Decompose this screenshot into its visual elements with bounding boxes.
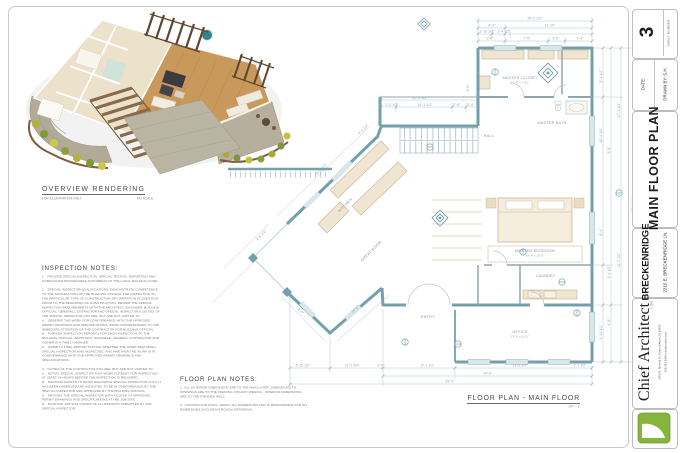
dimension-label: 29'-0" [445,380,455,384]
dimension-label: 11'-2 3/4" [345,364,361,368]
floor-plan-notes-body: 1. ALL EXTERIOR DIMENSIONS ARE TO THE MA… [180,386,308,412]
dimension-label: 2'-6" [486,37,494,41]
dimension-label: 10'-2 1/2" [599,127,603,143]
drawn-by-label: DRAWN BY: S.H. [663,67,668,100]
room-label: OFFICE [512,330,528,334]
dimension-label: 8'-4" [599,228,603,236]
plan-caption-title: FLOOR PLAN - MAIN FLOOR [467,395,580,404]
project-address: 2315 E. BRECKENRIDGE LN. [663,231,668,292]
sheet-title: MAIN FLOOR PLAN [647,106,661,230]
dimension-label: 17'-4 1/2" [617,102,621,118]
room-label: LAUNDRY [536,274,556,278]
floor-plan-notes-title: FLOOR PLAN NOTES: [180,376,308,383]
overview-subtitle-left: FOR ILLUSTRATION ONLY [42,197,82,201]
overview-caption: OVERVIEW RENDERING FOR ILLUSTRATION ONLY… [42,178,202,204]
titleblock-date-box [632,59,678,111]
titleblock-project-box [632,228,678,298]
brand-name: Chief Architect [636,303,654,401]
dimension-label: 24'-0" [483,372,493,376]
titleblock-divider [663,10,664,56]
room-label: HALL [484,134,494,138]
inspection-notes-title: INSPECTION NOTES: [42,265,162,272]
dimension-label: 1'-4 1/2" [497,30,511,34]
dimension-label: 8'-2" [488,24,496,28]
dimension-label: 9'-0" [466,84,470,92]
dimension-label: 2'-1 1/2" [573,364,587,368]
dimension-label: 9'-8" [607,146,611,154]
north-arrow-icon [418,18,430,30]
room-label: MASTER CLOSET [502,76,537,80]
sheet-number: 3 [637,27,659,38]
dimension-label: 4'-2 1/2" [357,123,370,136]
dimension-label: 2'-6 1/2" [385,103,399,107]
dimension-label: 2'-6" [377,364,385,368]
dimension-label: 4'-0" [607,318,611,326]
dimension-label: 6'-1 1/2" [421,364,435,368]
sheet-number-label: SHEET NUMBER [668,20,671,47]
dimension-label: 5'-11 1/2" [296,364,312,368]
dimension-label: 2'-6 1/2" [255,229,268,242]
overview-title: OVERVIEW RENDERING [42,186,145,195]
room-label: GREAT ROOM [360,240,383,263]
dimension-label: 34'-2 1/2" [527,17,543,21]
brand-address-line1: 6500 N. Mineral Dr. Coeur d'Alene, ID 83… [659,324,662,379]
project-name: BRECKENRIDGE [641,223,652,300]
dimension-label: 3'-1 1/2" [599,69,603,83]
room-label: ENTRY [421,315,435,319]
inspection-notes: INSPECTION NOTES: 1. PROVIDE SPECIAL INS… [42,265,162,453]
room-size-label: 16'-4" x 15'-2" [526,254,544,258]
brand-logo-icon [637,412,671,444]
titleblock-divider [654,60,655,108]
room-size-label: 13'-0" x 11'-2" [511,335,529,339]
dimension-label: 14'-1 1/2" [417,103,433,107]
dimension-label: 11'-7 1/2" [617,252,621,268]
dimension-label: 4'-11 1/2" [599,324,603,340]
stairs [400,128,478,153]
date-label: DATE: [641,78,646,90]
dimension-label: 2'-6" [453,103,461,107]
drawing-sheet: 34'-2 1/2"8'-2"11'-10"1'-10 1/2"1'-4 1/2… [0,0,680,453]
brand-address-line2: 208.292.3400 chiefarchitect.com [665,332,668,372]
plan-scale: 1/4" = 1' [518,405,581,409]
deck-edge [230,175,330,298]
overview-subtitle-right: NO SCALE [137,197,153,201]
dimension-label: 3'-6" [552,37,560,41]
dimension-label: 7'-0" [523,37,531,41]
dimension-label: 7'-4" [576,37,584,41]
dimension-label: 20'-1 1/4" [412,96,428,100]
bath-fixtures [555,101,587,114]
dimension-label: 17'-2 3/4" [512,364,528,368]
floor-plan-notes: FLOOR PLAN NOTES: 1. ALL EXTERIOR DIMENS… [180,376,308,439]
ceiling-beam-hatch [432,200,482,260]
overview-rendering [4,2,304,187]
room-size-label: 17'-8" x 7'-10" [511,81,529,85]
room-label: MASTER BATH [537,121,566,125]
room-label: MASTER BEDROOM [515,249,555,253]
dimension-label: 1'-4 1/2" [607,265,611,279]
inspection-notes-body: 1. PROVIDE SPECIAL INSPECTION, SPECIAL T… [42,275,162,411]
dimension-label: 3'-6" [467,103,475,107]
plan-caption: FLOOR PLAN - MAIN FLOOR 1/4" = 1' [455,387,580,412]
copyright-text: © 2015 [651,301,654,309]
dimension-label: 11'-10" [545,24,557,28]
dimension-label: 1'-10 1/2" [479,30,495,34]
